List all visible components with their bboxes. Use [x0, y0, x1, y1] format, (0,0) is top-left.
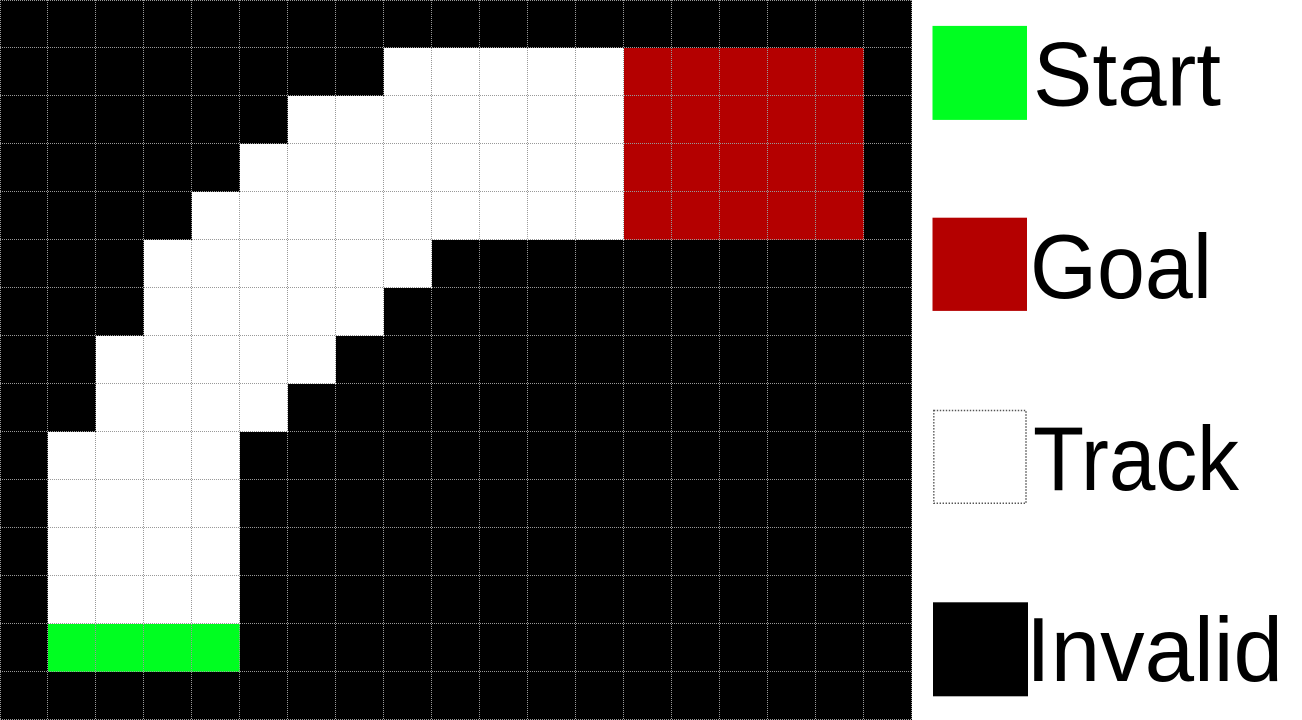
svg-text:Track: Track	[1033, 409, 1239, 510]
svg-text:Start: Start	[1033, 25, 1221, 126]
svg-text:Goal: Goal	[1030, 217, 1212, 318]
svg-text:Invalid: Invalid	[1026, 600, 1283, 701]
